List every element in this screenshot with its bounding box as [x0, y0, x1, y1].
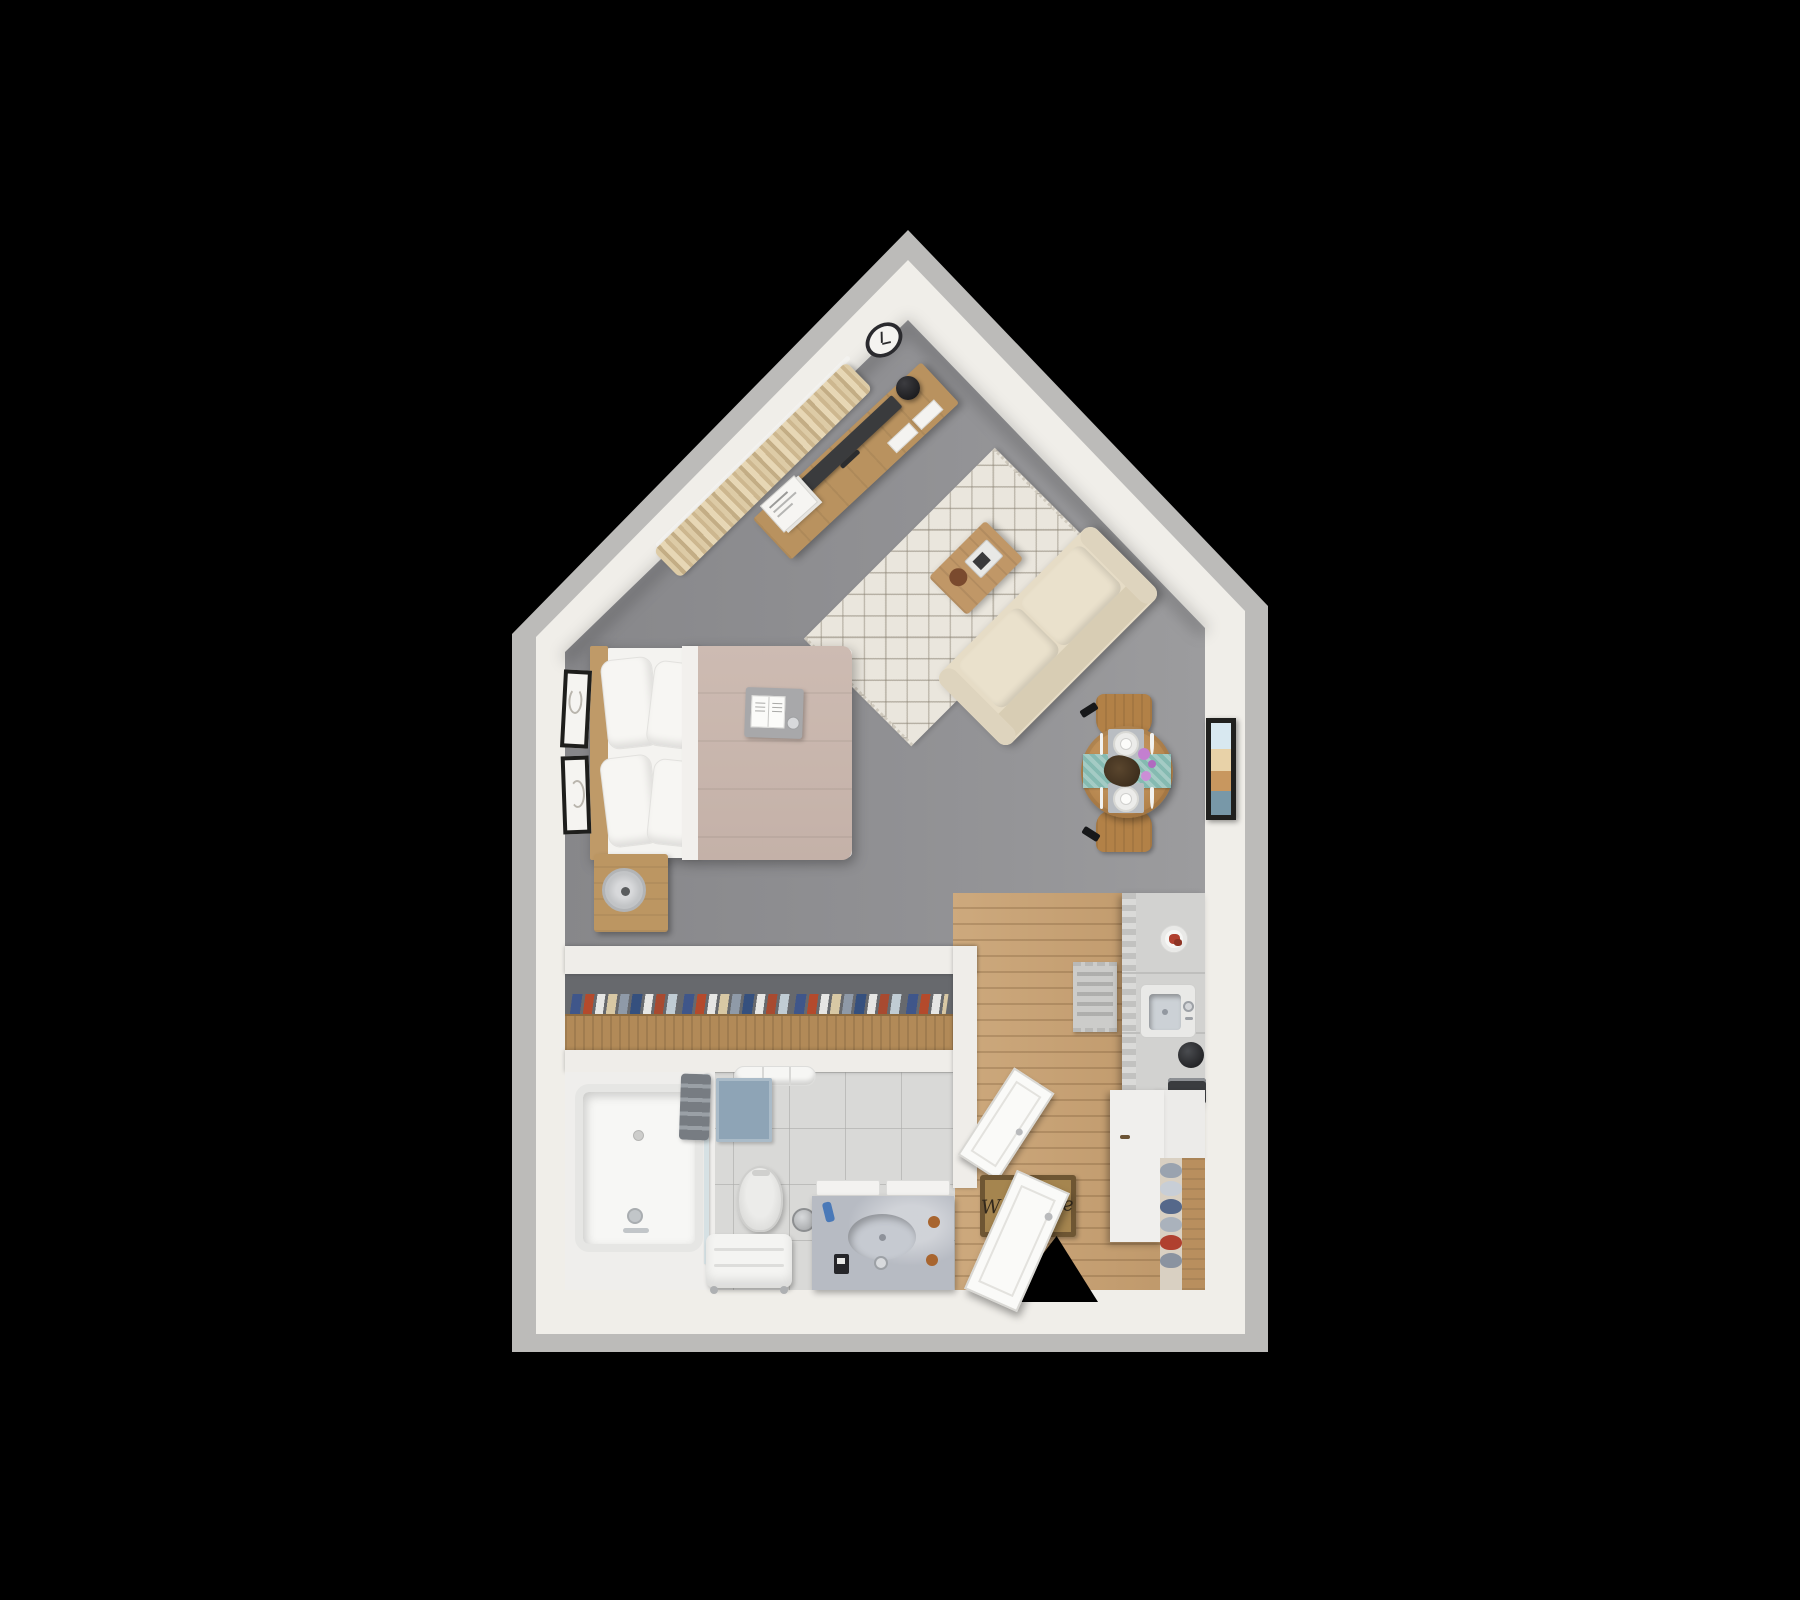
cabinet-handle	[1120, 1135, 1130, 1139]
table-fan	[602, 868, 646, 912]
soap-bottle	[926, 1254, 938, 1266]
kitchen-unit	[1122, 893, 1205, 1105]
framed-art	[560, 669, 592, 748]
book-crease	[768, 697, 770, 727]
shoes	[1160, 1160, 1184, 1271]
open-book	[750, 695, 785, 728]
tub-faucet	[629, 1210, 641, 1222]
box-label	[837, 1258, 845, 1264]
fridge-vents	[1122, 893, 1136, 1105]
serving-tray	[964, 539, 1004, 579]
vanity	[812, 1180, 954, 1290]
purple-flower	[1138, 748, 1150, 760]
towel-roll-seam	[789, 1067, 791, 1085]
book-text	[772, 703, 782, 704]
sink-basin	[1149, 994, 1181, 1030]
shoe	[1160, 1253, 1182, 1268]
sink-faucet	[1185, 1003, 1192, 1010]
dinner-plate	[1113, 786, 1139, 812]
tray-remote	[972, 552, 990, 570]
bench-towel-fold	[714, 1248, 784, 1251]
dinner-plate	[1113, 731, 1139, 757]
shoe	[1160, 1163, 1182, 1178]
vanity-drawer	[886, 1180, 950, 1196]
cosmetics-box	[834, 1254, 849, 1274]
spoon	[1150, 787, 1154, 809]
shoe	[1160, 1235, 1182, 1250]
coffee-grinder	[1178, 1042, 1204, 1068]
wall-bedroom-closet	[565, 946, 977, 974]
vanity-counter	[812, 1196, 954, 1290]
clothes-rail	[565, 1014, 953, 1050]
toilet-hinge	[752, 1170, 770, 1176]
tub-handles	[623, 1228, 649, 1233]
toilet	[737, 1166, 783, 1232]
vanity-faucet	[876, 1258, 886, 1268]
shoe-rack-board	[1182, 1158, 1205, 1290]
soap-bottle	[928, 1216, 940, 1228]
hanging-clothes	[569, 994, 948, 1016]
runner-pattern	[1077, 972, 1113, 1022]
clock-hand	[882, 341, 891, 345]
apartment-shell	[0, 0, 1800, 1600]
sink-drain	[879, 1234, 886, 1241]
entry-counter	[1158, 1090, 1205, 1158]
bench-towel-fold	[714, 1264, 784, 1267]
food-plate	[1160, 925, 1188, 953]
spoon	[1150, 733, 1154, 755]
duvet	[698, 646, 852, 860]
base-cabinet	[1110, 1090, 1164, 1242]
vanity-drawer	[816, 1180, 880, 1196]
art-squiggle	[569, 780, 585, 809]
bench-leg	[780, 1286, 788, 1294]
table-lamp	[896, 376, 920, 400]
towel-bench	[706, 1234, 792, 1288]
decor-bowl	[946, 564, 971, 589]
closet-niche	[565, 974, 953, 1050]
food	[1174, 939, 1182, 946]
art-squiggle	[568, 688, 583, 715]
framed-art	[561, 756, 592, 835]
clock-hand	[881, 332, 883, 343]
toothpaste	[822, 1201, 836, 1223]
shoe-rack-niche	[1160, 1158, 1205, 1290]
vanity-sink	[848, 1214, 916, 1260]
sink-handle	[1185, 1017, 1193, 1020]
nightstand	[594, 854, 668, 932]
fork	[1100, 787, 1103, 809]
entry-runner-rug	[1073, 962, 1117, 1032]
framed-beach-art	[1206, 718, 1236, 820]
floor-plan-canvas: Welcome	[0, 0, 1800, 1600]
bench-leg	[710, 1286, 718, 1294]
gray-towels	[679, 1073, 711, 1140]
shoe	[1160, 1199, 1182, 1214]
shoe	[1160, 1217, 1182, 1232]
breakfast-tray	[744, 687, 804, 739]
unit-divider	[1122, 972, 1205, 974]
shoe	[1160, 1181, 1182, 1196]
book-text	[755, 702, 765, 703]
coffee-cup	[786, 716, 799, 729]
sink-drain	[1162, 1009, 1168, 1015]
fork	[1100, 733, 1103, 755]
bed	[590, 646, 852, 860]
bath-mat	[716, 1078, 772, 1142]
kitchen-sink	[1140, 984, 1196, 1038]
tub-drain	[633, 1130, 644, 1141]
fan-hub	[621, 887, 630, 896]
